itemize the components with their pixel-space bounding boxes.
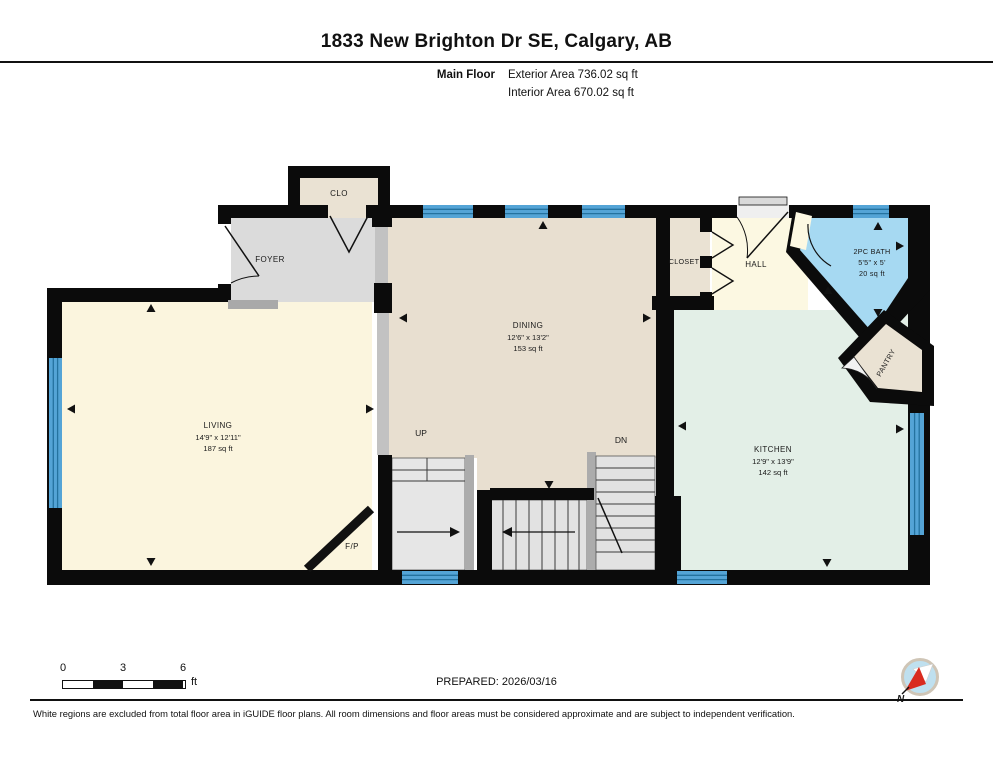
window — [423, 205, 473, 218]
kitchen-area: 142 sq ft — [758, 468, 788, 477]
living-dims: 14'9" x 12'11" — [195, 433, 241, 442]
closet-label: CLOSET — [669, 257, 700, 266]
footer-divider — [30, 699, 963, 701]
stair-mid-flight — [490, 500, 587, 570]
fireplace-label: F/P — [345, 542, 359, 551]
clo-label: CLO — [330, 189, 348, 198]
window — [910, 413, 924, 535]
disclaimer-text: White regions are excluded from total fl… — [33, 708, 963, 719]
window — [505, 205, 548, 218]
dining-floor-ext — [477, 458, 587, 490]
bath-area: 20 sq ft — [859, 269, 885, 278]
scale-tick-3: 3 — [116, 662, 130, 674]
window — [402, 571, 458, 584]
kitchen-label: KITCHEN — [754, 445, 792, 454]
stairs-up-label: UP — [415, 428, 427, 438]
dining-area: 153 sq ft — [513, 344, 543, 353]
floor-plan: CLO FOYER LIVING 14'9" x 12'11" 187 sq f… — [0, 0, 993, 768]
hall-label: HALL — [745, 260, 767, 269]
door-slab — [739, 197, 787, 205]
foyer-shelf — [228, 300, 278, 309]
bath-dims: 5'5" x 5' — [858, 258, 886, 267]
stair-railing-dn — [587, 452, 596, 570]
kitchen-dims: 12'9" x 13'9" — [752, 457, 794, 466]
window — [853, 205, 889, 218]
window — [49, 358, 62, 508]
foyer-label: FOYER — [255, 255, 285, 264]
window — [582, 205, 625, 218]
dining-dims: 12'6" x 13'2" — [507, 333, 549, 342]
scale-tick-6: 6 — [176, 662, 190, 674]
clo-doorway — [328, 205, 366, 218]
prepared-date: PREPARED: 2026/03/16 — [0, 676, 993, 688]
dining-label: DINING — [513, 321, 543, 330]
stairs-down-label: DN — [615, 435, 627, 445]
window — [677, 571, 727, 584]
foyer-floor — [225, 212, 378, 302]
bath-label: 2PC BATH — [853, 247, 890, 256]
stair-railing — [465, 455, 474, 570]
stair-up-flight — [392, 458, 465, 570]
living-area: 187 sq ft — [203, 444, 233, 453]
living-label: LIVING — [204, 421, 233, 430]
scale-tick-0: 0 — [56, 662, 70, 674]
